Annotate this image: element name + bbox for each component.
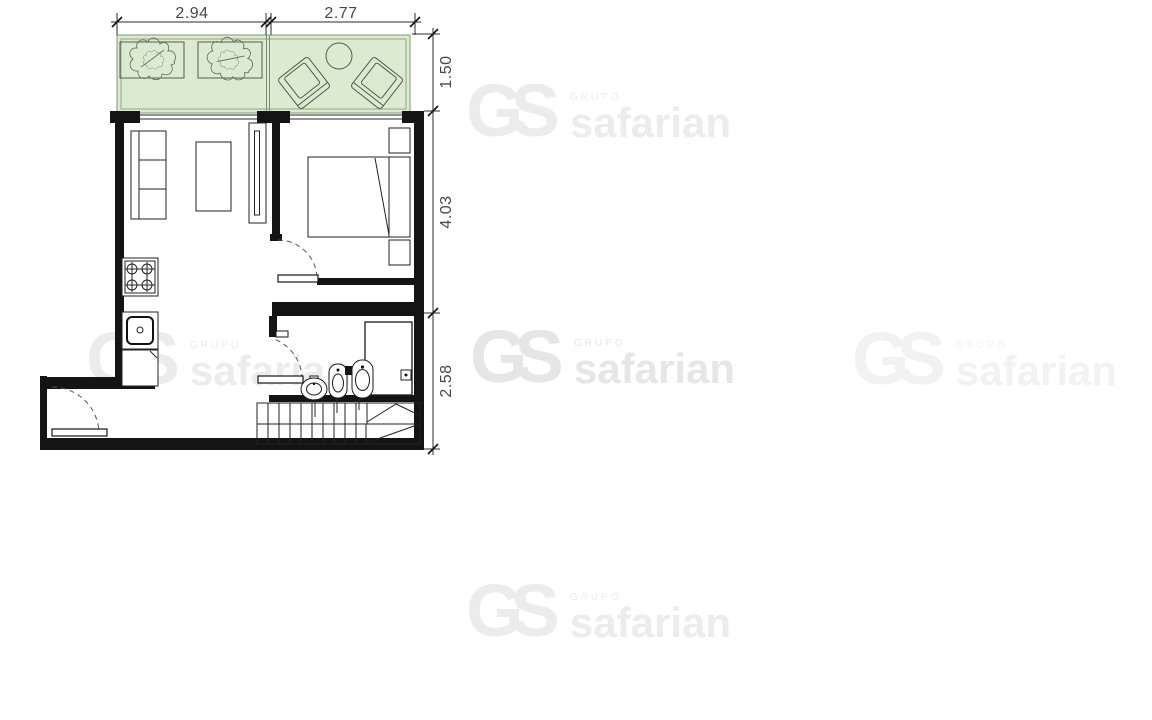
doors [52,240,318,436]
bathroom-north-wall [272,302,414,316]
floor-plan-drawing: 2.94 2.77 1.50 4.03 2.58 [0,0,1152,720]
entry-door [52,387,107,436]
bedroom-south-wall [317,278,414,285]
wash-basin [301,376,327,400]
double-bed [308,157,410,237]
staircase [257,403,420,444]
toilet [352,360,373,398]
kitchen-fixtures [122,258,158,386]
floor-plan-page: GS GRUPO safarian GS GRUPO safarian GS G… [0,0,1152,720]
bidet [329,364,347,398]
living-room-furniture [131,123,266,223]
partition-wall [272,118,280,238]
dim-right-main: 4.03 [438,195,455,228]
dim-top-left: 2.94 [175,5,208,22]
nightstand [389,240,410,265]
sofa [131,131,166,219]
kitchen-sink [122,312,158,349]
tv-unit [249,123,266,223]
bedroom-furniture [308,128,410,265]
base-cabinet [122,350,158,386]
stair-direction-mark [367,404,419,422]
dim-top-right: 2.77 [324,5,357,22]
bathroom-door [258,339,303,383]
dim-right-terrace: 1.50 [438,55,455,88]
coffee-table [196,142,231,211]
right-wall [414,118,424,450]
nightstand [389,128,410,153]
terrace [117,31,410,113]
stove [122,258,158,296]
dim-right-lower: 2.58 [438,364,455,397]
bedroom-door [278,240,318,282]
